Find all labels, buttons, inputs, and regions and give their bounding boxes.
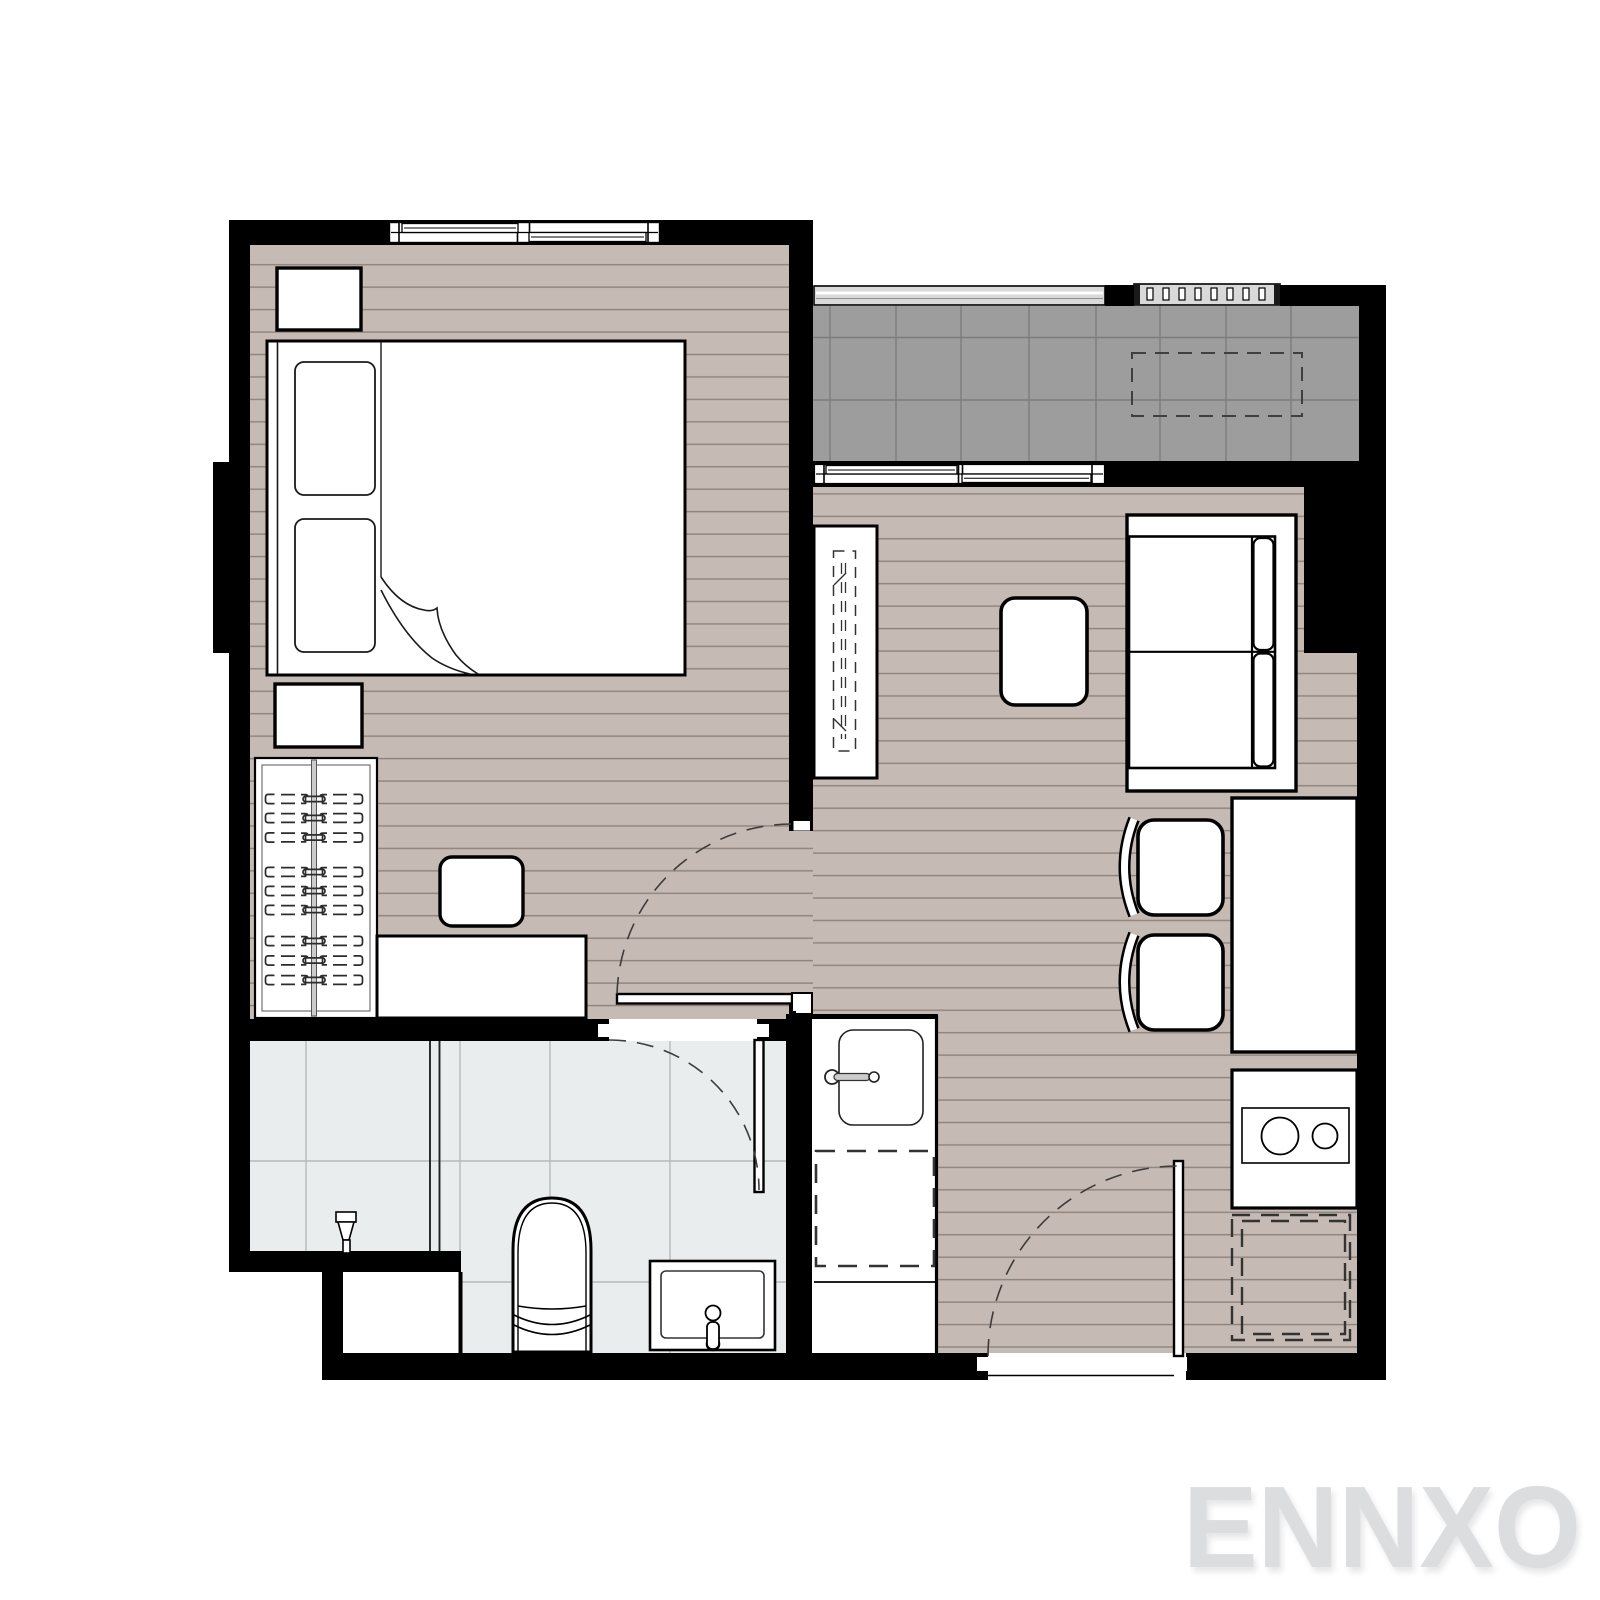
svg-text:ENNXO: ENNXO (1183, 1462, 1581, 1592)
